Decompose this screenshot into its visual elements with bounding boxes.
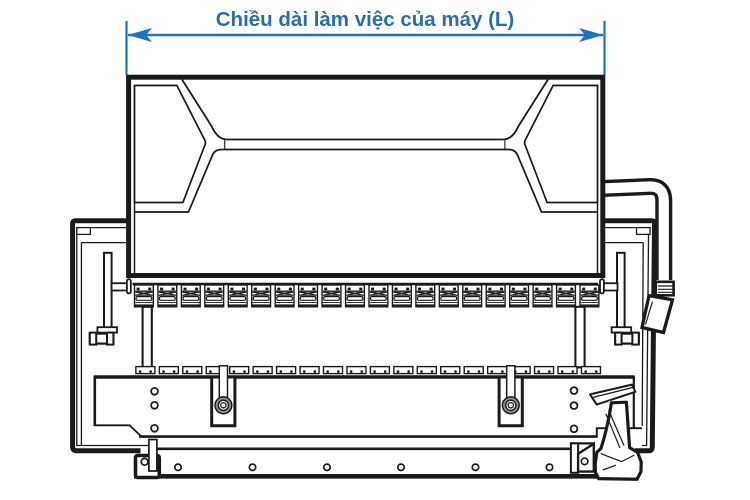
svg-text:Chiều dài làm việc của máy (L): Chiều dài làm việc của máy (L) [216, 8, 515, 31]
